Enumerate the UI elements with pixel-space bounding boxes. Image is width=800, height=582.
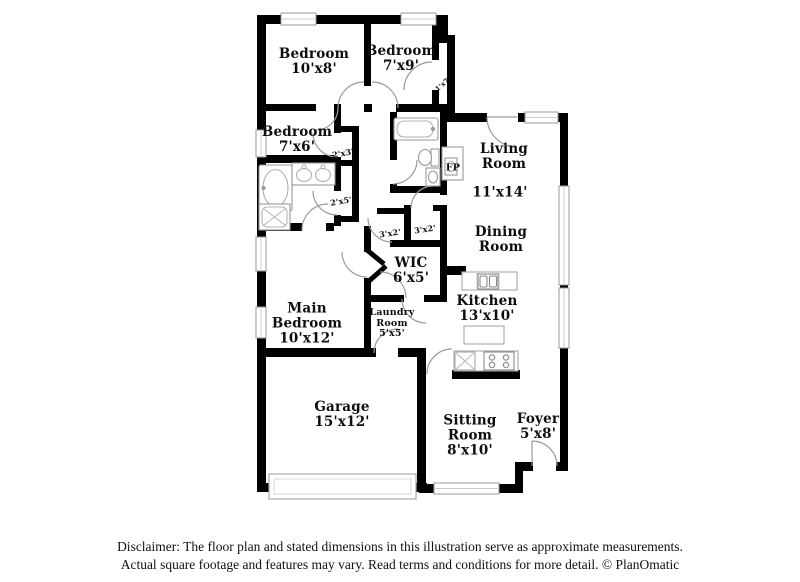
kitchen-island-icon bbox=[464, 326, 504, 344]
door-hall-bath bbox=[393, 160, 417, 184]
room-dims-living-room: 11'x14' bbox=[472, 185, 527, 200]
disclaimer-line-2: Actual square footage and features may v… bbox=[0, 556, 800, 574]
room-label-kitchen: Kitchen 13'x10' bbox=[457, 294, 518, 324]
room-label-bedroom-top-left: Bedroom 10'x8' bbox=[279, 47, 349, 77]
door-bedroom-top-left bbox=[338, 82, 364, 108]
door-kitchen bbox=[427, 349, 452, 374]
floorplan-page: Bedroom 10'x8' Bedroom 7'x9' Bedroom 7'x… bbox=[0, 0, 800, 582]
fireplace-label: FP bbox=[446, 163, 460, 174]
room-label-foyer: Foyer 5'x8' bbox=[517, 412, 559, 442]
room-label-dining-room: Dining Room bbox=[469, 225, 533, 255]
disclaimer: Disclaimer: The floor plan and stated di… bbox=[0, 538, 800, 574]
kitchen-lower-counter-icon bbox=[454, 351, 518, 371]
room-label-wic: WIC 6'x5' bbox=[393, 256, 429, 286]
main-bath-vanity-icon bbox=[292, 163, 335, 185]
hall-bath-tub-icon bbox=[394, 118, 438, 140]
door-front-entry bbox=[532, 441, 557, 466]
hall-bath-sink-icon bbox=[426, 168, 440, 186]
door-main-bedroom bbox=[342, 252, 367, 277]
room-label-sitting-room: Sitting Room 8'x10' bbox=[437, 413, 503, 458]
door-bedroom-top-right bbox=[372, 82, 398, 108]
main-bath-shower-icon bbox=[259, 204, 290, 230]
room-label-bedroom-top-right: Bedroom 7'x9' bbox=[366, 44, 436, 74]
angled-door-leaves bbox=[367, 250, 386, 281]
room-label-bedroom-left: Bedroom 7'x6' bbox=[262, 125, 332, 155]
room-label-garage: Garage 15'x12' bbox=[314, 400, 369, 430]
floorplan-drawing bbox=[0, 0, 800, 582]
hall-bath-toilet-icon bbox=[419, 149, 440, 166]
room-label-laundry: Laundry Room 5'x5' bbox=[366, 308, 418, 340]
garage-door bbox=[269, 474, 416, 499]
disclaimer-line-1: Disclaimer: The floor plan and stated di… bbox=[0, 538, 800, 556]
room-label-living-room: Living Room bbox=[472, 142, 536, 172]
door-main-bath bbox=[302, 204, 328, 230]
room-label-main-bedroom: Main Bedroom 10'x12' bbox=[269, 301, 345, 346]
